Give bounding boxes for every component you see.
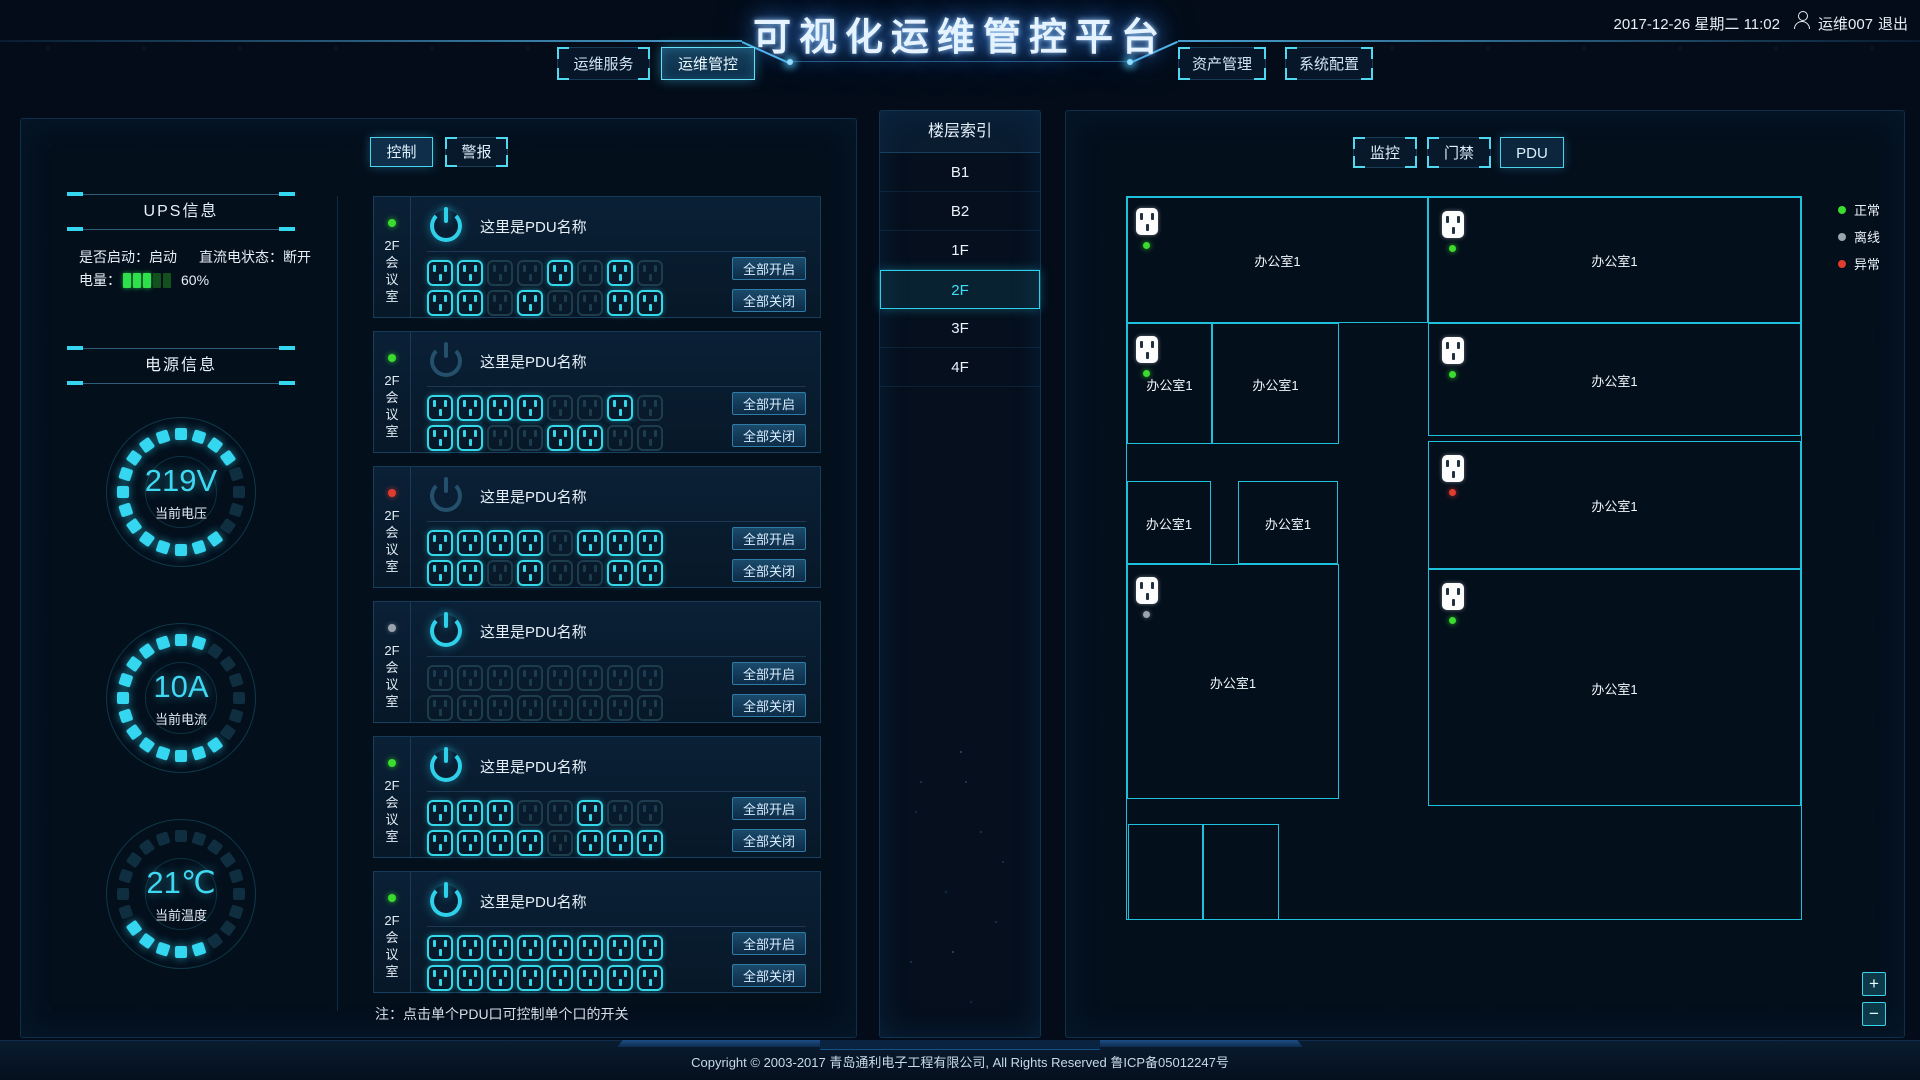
- pdu-port[interactable]: [577, 425, 603, 451]
- pdu-port[interactable]: [577, 530, 603, 556]
- status-dot: [388, 354, 396, 362]
- open-all-button[interactable]: 全部开启: [732, 797, 806, 820]
- nav-yunwei-guankong[interactable]: 运维管控: [661, 47, 755, 80]
- socket-icon[interactable]: [1442, 211, 1464, 238]
- zoom-out-button[interactable]: −: [1862, 1002, 1886, 1026]
- pdu-port[interactable]: [577, 260, 603, 286]
- status-dot: [388, 894, 396, 902]
- pdu-port[interactable]: [547, 695, 573, 721]
- pdu-card: 2F会议室这里是PDU名称全部开启全部关闭: [373, 601, 821, 723]
- room-label: 办公室1: [1429, 496, 1800, 515]
- close-all-button[interactable]: 全部关闭: [732, 424, 806, 447]
- battery-bar: [163, 273, 171, 288]
- pdu-port[interactable]: [607, 830, 633, 856]
- pdu-port[interactable]: [517, 935, 543, 961]
- pdu-port[interactable]: [517, 395, 543, 421]
- room: 办公室1: [1428, 441, 1801, 569]
- pdu-port[interactable]: [457, 800, 483, 826]
- open-all-button[interactable]: 全部开启: [732, 527, 806, 550]
- footer-accent-right: [1087, 1040, 1302, 1047]
- power-icon: [427, 612, 465, 650]
- pdu-port[interactable]: [457, 290, 483, 316]
- ups-status-row: 是否启动：启动 直流电状态：断开: [79, 247, 311, 267]
- pdu-port[interactable]: [637, 965, 663, 991]
- pdu-port[interactable]: [457, 665, 483, 691]
- pdu-name: 这里是PDU名称: [480, 351, 587, 372]
- pdu-port[interactable]: [637, 425, 663, 451]
- room: 办公室1: [1127, 197, 1428, 323]
- pdu-port[interactable]: [487, 935, 513, 961]
- close-all-button[interactable]: 全部关闭: [732, 829, 806, 852]
- pdu-name: 这里是PDU名称: [480, 621, 587, 642]
- screen: 可视化运维管控平台 2017-12-26 星期二 11:02 运维007 退出 …: [0, 0, 1920, 1080]
- power-icon: [427, 747, 465, 785]
- pdu-note: 注：点击单个PDU口可控制单个口的开关: [375, 1004, 629, 1024]
- pdu-port[interactable]: [547, 560, 573, 586]
- voltage-gauge: 219V 当前电压: [101, 412, 261, 572]
- current-gauge: 10A 当前电流: [101, 618, 261, 778]
- pdu-port[interactable]: [517, 290, 543, 316]
- legend-normal: 正常: [1838, 196, 1880, 223]
- ups-started-label: 是否启动：启动: [79, 247, 177, 267]
- battery-row: 电量： 60%: [79, 270, 209, 290]
- room-label: 办公室1: [1429, 371, 1800, 390]
- pdu-side-strip: 2F会议室: [374, 602, 411, 722]
- room-label: 办公室1: [1128, 514, 1210, 533]
- pdu-port[interactable]: [427, 425, 453, 451]
- room-status-dot: [1449, 371, 1456, 378]
- pdu-port[interactable]: [487, 800, 513, 826]
- pdu-port[interactable]: [547, 965, 573, 991]
- pdu-port[interactable]: [487, 965, 513, 991]
- power-icon: [427, 342, 465, 380]
- nav-zichan-guanli[interactable]: 资产管理: [1178, 47, 1266, 80]
- pdu-port[interactable]: [427, 530, 453, 556]
- temperature-label: 当前温度: [155, 905, 207, 924]
- pdu-port[interactable]: [577, 290, 603, 316]
- status-dot: [388, 489, 396, 497]
- floor-plan: 办公室1办公室1办公室1办公室1办公室1办公室1办公室1办公室1办公室1办公室1: [1126, 196, 1802, 920]
- floor-index-title: 楼层索引: [880, 111, 1040, 153]
- pdu-side-strip: 2F会议室: [374, 872, 411, 992]
- alarm-dot-icon: [1838, 260, 1846, 268]
- close-all-button[interactable]: 全部关闭: [732, 694, 806, 717]
- voltage-label: 当前电压: [155, 503, 207, 522]
- floor-item-3f[interactable]: 3F: [880, 309, 1040, 348]
- pdu-port[interactable]: [607, 665, 633, 691]
- room-status-dot: [1449, 245, 1456, 252]
- pdu-port[interactable]: [517, 830, 543, 856]
- nav-yunwei-fuwu[interactable]: 运维服务: [557, 47, 650, 80]
- socket-icon[interactable]: [1136, 577, 1158, 604]
- pdu-port[interactable]: [637, 395, 663, 421]
- room: 办公室1: [1127, 481, 1211, 564]
- tab-monitor[interactable]: 监控: [1353, 137, 1417, 168]
- room: 办公室1: [1127, 323, 1212, 444]
- room-status-dot: [1143, 370, 1150, 377]
- pdu-port[interactable]: [547, 260, 573, 286]
- panel-divider: [337, 196, 338, 1011]
- close-all-button[interactable]: 全部关闭: [732, 559, 806, 582]
- pdu-port[interactable]: [637, 290, 663, 316]
- room-label: 办公室1: [1429, 679, 1800, 698]
- pdu-location: 2F会议室: [374, 777, 410, 845]
- floor-item-b2[interactable]: B2: [880, 192, 1040, 231]
- legend-label: 正常: [1854, 200, 1880, 219]
- pdu-port[interactable]: [487, 290, 513, 316]
- pdu-port[interactable]: [607, 800, 633, 826]
- pdu-port[interactable]: [577, 935, 603, 961]
- pdu-port[interactable]: [487, 260, 513, 286]
- pdu-side-strip: 2F会议室: [374, 197, 411, 317]
- pdu-port[interactable]: [457, 395, 483, 421]
- room-status-dot: [1449, 489, 1456, 496]
- floor-item-b1[interactable]: B1: [880, 153, 1040, 192]
- pdu-port[interactable]: [517, 965, 543, 991]
- pdu-port[interactable]: [457, 425, 483, 451]
- room: 办公室1: [1127, 564, 1339, 799]
- temperature-value: 21℃: [146, 865, 215, 901]
- pdu-card: 2F会议室这里是PDU名称全部开启全部关闭: [373, 466, 821, 588]
- pdu-port[interactable]: [517, 560, 543, 586]
- pdu-port[interactable]: [547, 665, 573, 691]
- floor-item-1f[interactable]: 1F: [880, 231, 1040, 270]
- room: 办公室1: [1428, 569, 1801, 806]
- pdu-port[interactable]: [427, 665, 453, 691]
- pdu-port[interactable]: [517, 260, 543, 286]
- socket-icon[interactable]: [1136, 208, 1158, 235]
- pdu-port[interactable]: [487, 395, 513, 421]
- floor-item-2f[interactable]: 2F: [880, 270, 1040, 309]
- pdu-port[interactable]: [547, 800, 573, 826]
- pdu-name: 这里是PDU名称: [480, 216, 587, 237]
- battery-percent: 60%: [181, 272, 209, 288]
- pdu-name: 这里是PDU名称: [480, 891, 587, 912]
- pdu-name: 这里是PDU名称: [480, 756, 587, 777]
- current-value: 10A: [153, 669, 208, 705]
- tab-access[interactable]: 门禁: [1427, 137, 1491, 168]
- open-all-button[interactable]: 全部开启: [732, 257, 806, 280]
- pdu-port[interactable]: [607, 290, 633, 316]
- pdu-port[interactable]: [577, 665, 603, 691]
- footer-accent-center: [820, 1040, 1100, 1050]
- ups-dc-label: 直流电状态：断开: [199, 247, 311, 267]
- pdu-port[interactable]: [457, 935, 483, 961]
- pdu-port[interactable]: [487, 530, 513, 556]
- pdu-port[interactable]: [547, 935, 573, 961]
- open-all-button[interactable]: 全部开启: [732, 392, 806, 415]
- decorative-speckles: [960, 751, 962, 753]
- status-dot: [388, 759, 396, 767]
- pdu-port[interactable]: [607, 425, 633, 451]
- tab-alarm[interactable]: 警报: [445, 137, 508, 167]
- open-all-button[interactable]: 全部开启: [732, 662, 806, 685]
- floor-item-4f[interactable]: 4F: [880, 348, 1040, 387]
- footer-text: Copyright © 2003-2017 青岛通利电子工程有限公司, All …: [0, 1052, 1920, 1071]
- pdu-port[interactable]: [577, 800, 603, 826]
- nav-xitong-peizhi[interactable]: 系统配置: [1285, 47, 1373, 80]
- pdu-port[interactable]: [577, 560, 603, 586]
- pdu-port[interactable]: [577, 830, 603, 856]
- current-label: 当前电流: [155, 709, 207, 728]
- room-status-dot: [1143, 242, 1150, 249]
- pdu-port[interactable]: [637, 560, 663, 586]
- room-status-dot: [1449, 617, 1456, 624]
- pdu-port[interactable]: [487, 695, 513, 721]
- pdu-port[interactable]: [517, 530, 543, 556]
- status-dot: [388, 219, 396, 227]
- pdu-port[interactable]: [547, 290, 573, 316]
- socket-icon[interactable]: [1442, 583, 1464, 610]
- legend-alarm: 异常: [1838, 250, 1880, 277]
- pdu-port[interactable]: [547, 425, 573, 451]
- socket-icon[interactable]: [1136, 336, 1158, 363]
- temperature-gauge: 21℃ 当前温度: [101, 814, 261, 974]
- pdu-port[interactable]: [607, 260, 633, 286]
- footer-accent-left: [617, 1040, 832, 1047]
- voltage-value: 219V: [145, 463, 217, 499]
- pdu-port[interactable]: [427, 395, 453, 421]
- pdu-card: 2F会议室这里是PDU名称全部开启全部关闭: [373, 736, 821, 858]
- room-status-dot: [1143, 611, 1150, 618]
- status-dot: [388, 624, 396, 632]
- battery-bars: [123, 273, 171, 288]
- pdu-port[interactable]: [457, 830, 483, 856]
- pdu-port[interactable]: [547, 830, 573, 856]
- pdu-list: 2F会议室这里是PDU名称全部开启全部关闭2F会议室这里是PDU名称全部开启全部…: [373, 196, 821, 1006]
- ups-section-title: UPS信息: [67, 192, 295, 232]
- user-icon: [1793, 11, 1811, 29]
- pdu-port[interactable]: [487, 830, 513, 856]
- pdu-port[interactable]: [577, 965, 603, 991]
- legend-label: 离线: [1854, 227, 1880, 246]
- pdu-port[interactable]: [577, 695, 603, 721]
- pdu-name: 这里是PDU名称: [480, 486, 587, 507]
- socket-icon[interactable]: [1442, 337, 1464, 364]
- username-text: 运维007: [1818, 13, 1873, 34]
- pdu-port[interactable]: [547, 530, 573, 556]
- pdu-port[interactable]: [487, 560, 513, 586]
- power-section-title: 电源信息: [67, 346, 295, 386]
- pdu-card: 2F会议室这里是PDU名称全部开启全部关闭: [373, 871, 821, 993]
- pdu-port[interactable]: [637, 695, 663, 721]
- pdu-port[interactable]: [547, 395, 573, 421]
- pdu-port[interactable]: [607, 395, 633, 421]
- pdu-port[interactable]: [427, 830, 453, 856]
- pdu-port[interactable]: [607, 695, 633, 721]
- pdu-port[interactable]: [517, 800, 543, 826]
- datetime-text: 2017-12-26 星期二 11:02: [1540, 13, 1780, 34]
- pdu-port[interactable]: [607, 530, 633, 556]
- pdu-port[interactable]: [457, 530, 483, 556]
- pdu-side-strip: 2F会议室: [374, 737, 411, 857]
- open-all-button[interactable]: 全部开启: [732, 932, 806, 955]
- room-label: 办公室1: [1128, 375, 1211, 394]
- pdu-port[interactable]: [457, 965, 483, 991]
- room: 办公室1: [1238, 481, 1338, 564]
- legend-offline: 离线: [1838, 223, 1880, 250]
- pdu-port[interactable]: [637, 800, 663, 826]
- pdu-port[interactable]: [607, 965, 633, 991]
- tab-control[interactable]: 控制: [370, 137, 433, 167]
- room-label: 办公室1: [1239, 514, 1337, 533]
- room: 办公室1: [1212, 323, 1339, 444]
- pdu-port[interactable]: [517, 425, 543, 451]
- normal-dot-icon: [1838, 206, 1846, 214]
- battery-bar: [123, 273, 131, 288]
- battery-bar: [153, 273, 161, 288]
- pdu-port[interactable]: [637, 260, 663, 286]
- pdu-port[interactable]: [487, 425, 513, 451]
- zoom-in-button[interactable]: +: [1862, 972, 1886, 996]
- pdu-port[interactable]: [427, 695, 453, 721]
- pdu-side-strip: 2F会议室: [374, 467, 411, 587]
- pdu-port[interactable]: [637, 830, 663, 856]
- pdu-port[interactable]: [487, 665, 513, 691]
- pdu-port[interactable]: [517, 695, 543, 721]
- pdu-port[interactable]: [607, 935, 633, 961]
- floor-index-panel: 楼层索引 B1 B2 1F 2F 3F 4F: [879, 110, 1041, 1038]
- socket-icon[interactable]: [1442, 455, 1464, 482]
- pdu-port[interactable]: [637, 665, 663, 691]
- pdu-location: 2F会议室: [374, 372, 410, 440]
- battery-bar: [143, 273, 151, 288]
- tab-pdu[interactable]: PDU: [1500, 137, 1564, 168]
- pdu-port[interactable]: [427, 290, 453, 316]
- pdu-port[interactable]: [517, 665, 543, 691]
- battery-label: 电量：: [79, 270, 121, 290]
- pdu-card: 2F会议室这里是PDU名称全部开启全部关闭: [373, 196, 821, 318]
- status-legend: 正常 离线 异常: [1838, 196, 1880, 277]
- room-label: 办公室1: [1213, 375, 1338, 394]
- pdu-port[interactable]: [607, 560, 633, 586]
- room-label: 办公室1: [1429, 251, 1800, 270]
- legend-label: 异常: [1854, 254, 1880, 273]
- pdu-location: 2F会议室: [374, 912, 410, 980]
- pdu-port[interactable]: [637, 530, 663, 556]
- close-all-button[interactable]: 全部关闭: [732, 289, 806, 312]
- pdu-location: 2F会议室: [374, 237, 410, 305]
- offline-dot-icon: [1838, 233, 1846, 241]
- pdu-port[interactable]: [457, 560, 483, 586]
- room-label: 办公室1: [1128, 251, 1427, 270]
- power-icon: [427, 207, 465, 245]
- pdu-port[interactable]: [637, 935, 663, 961]
- header-line-under-title: [792, 61, 1128, 62]
- pdu-card: 2F会议室这里是PDU名称全部开启全部关闭: [373, 331, 821, 453]
- room-label: 办公室1: [1128, 673, 1338, 692]
- pdu-port[interactable]: [457, 260, 483, 286]
- room: [1203, 824, 1279, 920]
- battery-bar: [133, 273, 141, 288]
- pdu-side-strip: 2F会议室: [374, 332, 411, 452]
- logout-button[interactable]: 退出: [1878, 13, 1908, 34]
- pdu-port[interactable]: [427, 965, 453, 991]
- pdu-port[interactable]: [427, 935, 453, 961]
- pdu-port[interactable]: [577, 395, 603, 421]
- close-all-button[interactable]: 全部关闭: [732, 964, 806, 987]
- room: [1128, 824, 1203, 920]
- pdu-port[interactable]: [457, 695, 483, 721]
- pdu-location: 2F会议室: [374, 642, 410, 710]
- pdu-port[interactable]: [427, 260, 453, 286]
- pdu-port[interactable]: [427, 800, 453, 826]
- power-icon: [427, 477, 465, 515]
- power-icon: [427, 882, 465, 920]
- pdu-port[interactable]: [427, 560, 453, 586]
- pdu-location: 2F会议室: [374, 507, 410, 575]
- room: 办公室1: [1428, 197, 1801, 323]
- room: 办公室1: [1428, 323, 1801, 436]
